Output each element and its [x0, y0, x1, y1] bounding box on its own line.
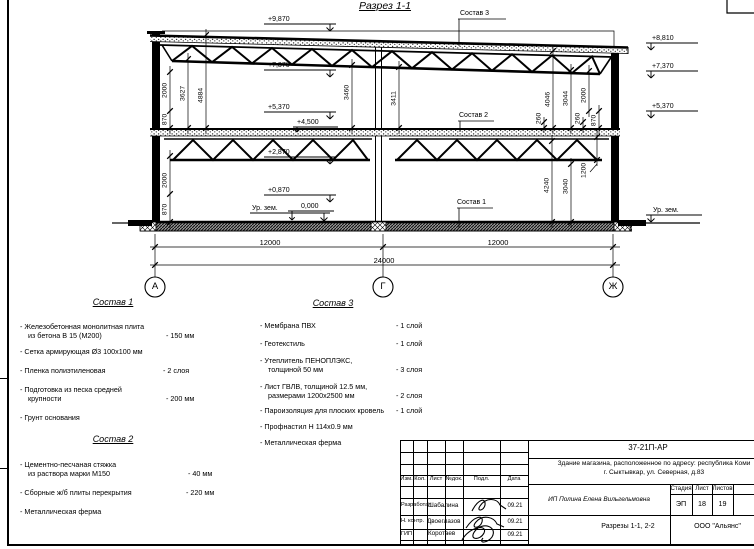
stamp-row-role: ГИП	[401, 532, 412, 538]
vdim: 870	[163, 101, 170, 137]
level-left-0: +9,870	[268, 16, 290, 23]
comp1-item-value: - 200 мм	[166, 395, 194, 402]
stamp-doc-number: 37-21П-АР	[528, 444, 754, 452]
stamp-stage-label: Стадия	[670, 486, 692, 492]
leader-label-sostav1: Состав 1	[457, 199, 486, 206]
stamp-row-role: Разработал	[401, 503, 431, 509]
level-right-1: +7,370	[652, 63, 674, 70]
hdim-bay2: 12000	[468, 239, 528, 247]
comp3-item: - Пароизоляция для плоских кровель	[260, 407, 384, 414]
comp3-item-value: - 1 слой	[396, 407, 422, 414]
comp3-item: размерами 1200х2500 мм	[268, 392, 355, 399]
vdim: 3040	[564, 168, 571, 204]
section-title: Разрез 1-1	[340, 1, 430, 12]
stamp-line	[528, 458, 754, 459]
comp1-title: Состав 1	[58, 298, 168, 307]
comp2-item-value: - 220 мм	[186, 489, 214, 496]
stamp-sheet-number: 18	[692, 500, 712, 507]
ground-slab	[112, 220, 700, 231]
stamp-line	[400, 529, 528, 530]
stamp-line	[733, 484, 734, 515]
comp1-item: - Сетка армирующая Ø3 100х100 мм	[20, 348, 143, 355]
stamp-row-name: Двоеглазов	[427, 519, 460, 525]
stamp-row-date: 09.21	[502, 519, 528, 525]
comp2-item: - Сборные ж/б плиты перекрытия	[20, 489, 132, 496]
level-left-3: +2,870	[268, 149, 290, 156]
vdim: 870	[592, 102, 599, 138]
slab-mark-upper: +4,500	[297, 119, 319, 126]
vdim: 3044	[564, 80, 571, 116]
comp3-item: - Металлическая ферма	[260, 439, 341, 446]
axis-zh: Ж	[605, 282, 621, 292]
comp1-item-value: - 150 мм	[166, 332, 194, 339]
level-right-0: +8,810	[652, 35, 674, 42]
comp1-item-value: - 2 слоя	[163, 367, 189, 374]
stamp-col-podl: Подл.	[463, 477, 500, 483]
comp1-item: - Пленка полиэтиленовая	[20, 367, 106, 374]
stamp-line	[400, 452, 528, 453]
stamp-line	[400, 540, 528, 541]
stamp-row-name: Шабалина	[428, 503, 458, 509]
hdim-bay1: 12000	[240, 239, 300, 247]
vdim: 4240	[545, 167, 552, 203]
floor-assembly	[150, 129, 620, 160]
stamp-col-list: Лист	[427, 477, 445, 483]
stamp-line	[670, 494, 754, 495]
sheet-corner-fragment	[727, 0, 754, 13]
vdim: 4046	[546, 81, 553, 117]
stamp-line	[400, 486, 528, 487]
comp3-item: - Профнастил Н 114х0.9 мм	[260, 423, 353, 430]
vdim: 3411	[392, 80, 399, 116]
stamp-sheet-label: Лист	[692, 486, 712, 492]
stamp-sheets-total: 19	[712, 500, 733, 507]
stamp-col-kol: Кол.	[413, 477, 427, 483]
comp3-item: - Утеплитель ПЕНОПЛЭКС,	[260, 357, 352, 364]
frame-tick	[0, 468, 7, 469]
stamp-object-line2: г. Сыктывкар, ул. Северная, д.83	[528, 470, 754, 477]
stamp-row-name: Коротаев	[428, 531, 455, 537]
comp3-title: Состав 3	[278, 299, 388, 308]
comp3-item-value: - 2 слоя	[396, 392, 422, 399]
level-left-1: +7,370	[268, 62, 290, 69]
comp1-item: крупности	[28, 395, 61, 402]
level-right-3: Ур. зем.	[653, 207, 679, 214]
stamp-row-role: Н. контр.	[401, 519, 424, 525]
hdim-total: 24000	[354, 257, 414, 265]
comp3-item: - Геотекстиль	[260, 340, 305, 347]
roof-assembly	[150, 36, 628, 75]
stamp-row-date: 09.21	[502, 503, 528, 509]
comp1-item: - Грунт основания	[20, 414, 80, 421]
comp2-item: - Металлическая ферма	[20, 508, 101, 515]
level-left-5: Ур. зем.	[252, 205, 278, 212]
comp2-title: Состав 2	[58, 435, 168, 444]
stamp-sheets-label: Листов	[712, 486, 733, 492]
stamp-row-date: 09.21	[502, 532, 528, 538]
stamp-line	[400, 464, 528, 465]
stamp-stage-value: ЭП	[670, 500, 692, 507]
axis-g: Г	[375, 282, 391, 292]
axis-a: А	[147, 282, 163, 292]
comp3-item-value: - 3 слоя	[396, 366, 422, 373]
vdim: 870	[163, 191, 170, 227]
comp2-item-value: - 40 мм	[188, 470, 212, 477]
comp1-item: - Подготовка из песка средней	[20, 386, 122, 393]
vdim: 1200	[582, 152, 589, 188]
comp3-item: толщиной 50 мм	[268, 366, 323, 373]
comp1-item: из бетона В 15 (М200)	[28, 332, 102, 339]
slab-mark-lower: 0,000	[301, 203, 319, 210]
comp1-item: - Железобетонная монолитная плита	[20, 323, 144, 330]
vdim: 260	[576, 100, 583, 136]
stamp-object-line1: Здание магазина, расположенное по адресу…	[528, 461, 754, 468]
comp3-item: - Мембрана ПВХ	[260, 322, 316, 329]
comp2-item: из раствора марки М150	[28, 470, 110, 477]
frame-tick	[0, 378, 7, 379]
level-left-4: +0,870	[268, 187, 290, 194]
vdim: 4884	[199, 77, 206, 113]
leader-label-sostav3: Состав 3	[460, 10, 489, 17]
comp2-item: - Цементно-песчаная стяжка	[20, 461, 116, 468]
comp3-item-value: - 1 слой	[396, 322, 422, 329]
level-left-2: +5,370	[268, 104, 290, 111]
com3-item-value: - 1 слой	[396, 340, 422, 347]
vdim: 2000	[582, 77, 589, 113]
drawing-sheet: Разрез 1-1 Состав 3 Состав 2 Состав 1 +9…	[0, 0, 754, 549]
vdim: 260	[537, 100, 544, 136]
comp3-item: - Лист ГВЛВ, толщиной 12.5 мм,	[260, 383, 367, 390]
stamp-client: ИП Полина Елена Вильгельмовна	[528, 497, 670, 503]
stamp-col-data: Дата	[500, 477, 528, 483]
stamp-line	[400, 498, 528, 499]
stamp-col-ndok: №док.	[445, 477, 463, 483]
stamp-col-izm: Изм.	[400, 477, 413, 483]
stamp-company: ООО "Альянс"	[670, 523, 754, 530]
sheet-frame-left	[7, 0, 9, 545]
stamp-line	[400, 515, 754, 516]
leader-label-sostav2: Состав 2	[459, 112, 488, 119]
level-right-2: +5,370	[652, 103, 674, 110]
vdim: 3460	[345, 74, 352, 110]
vdim: 3627	[181, 75, 188, 111]
